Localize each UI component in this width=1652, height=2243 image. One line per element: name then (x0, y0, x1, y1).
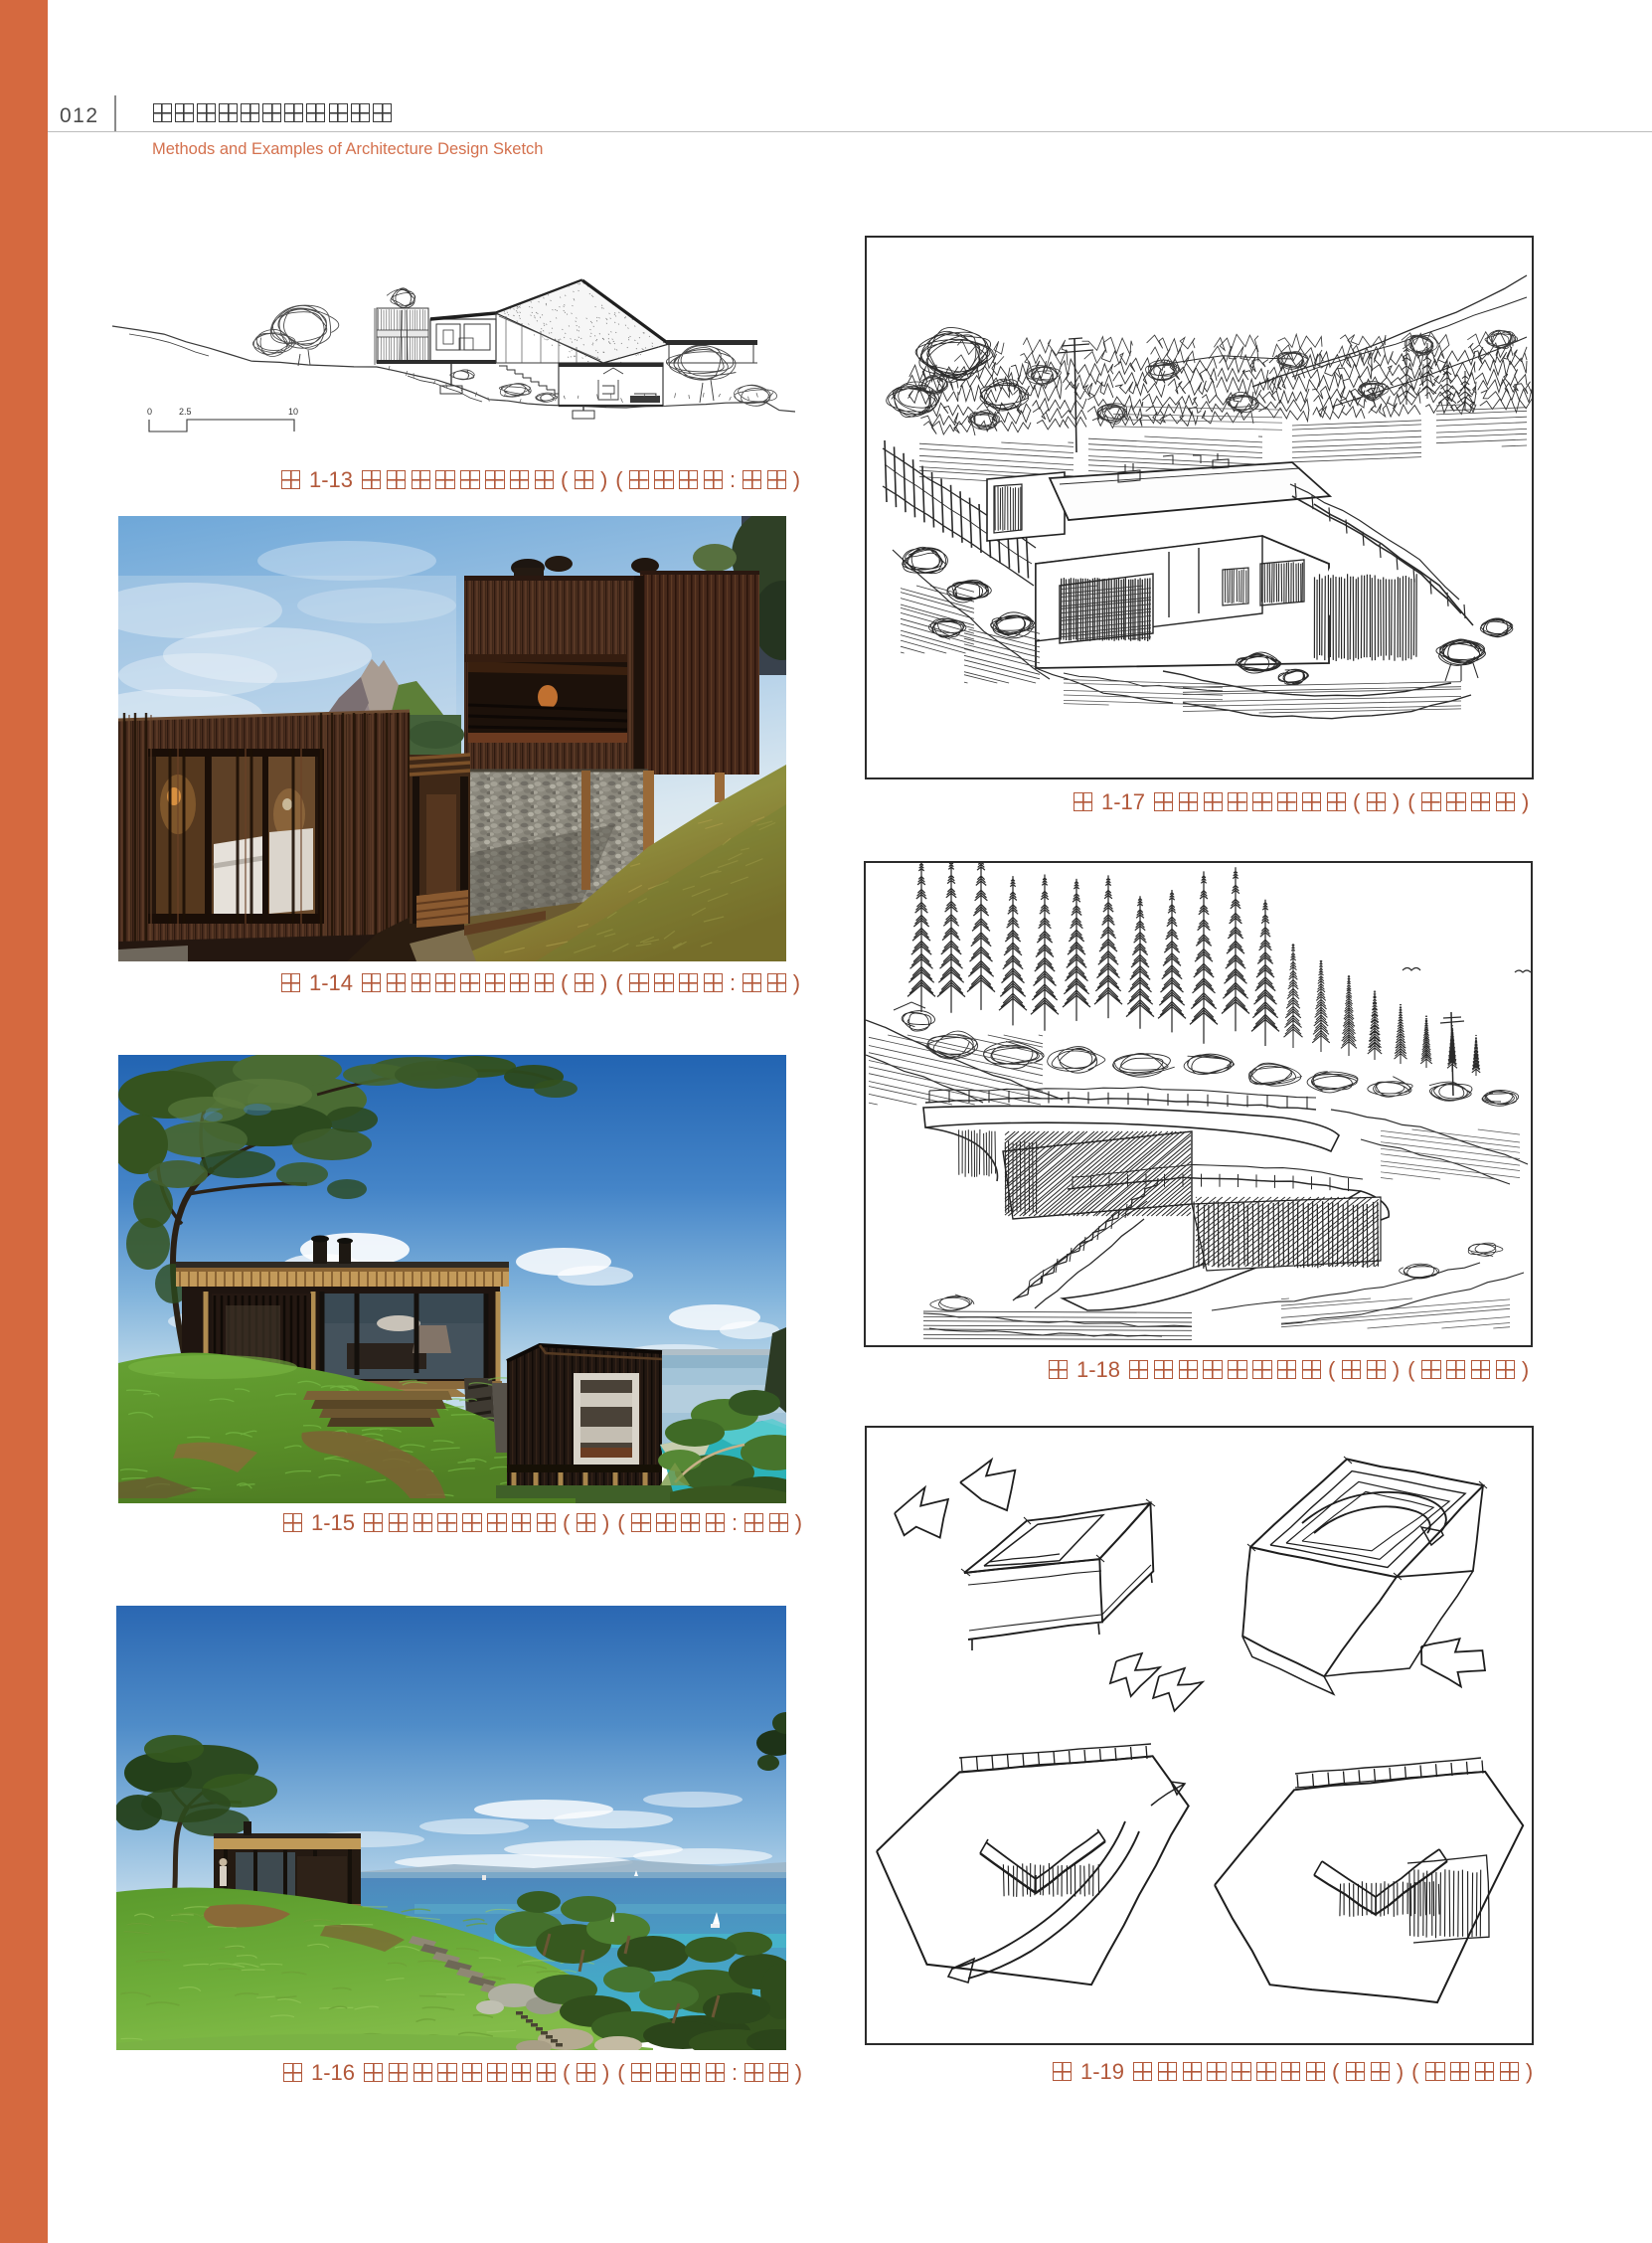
svg-text:0: 0 (147, 407, 152, 417)
svg-text:2.5: 2.5 (179, 407, 192, 417)
svg-text:10: 10 (288, 407, 298, 417)
